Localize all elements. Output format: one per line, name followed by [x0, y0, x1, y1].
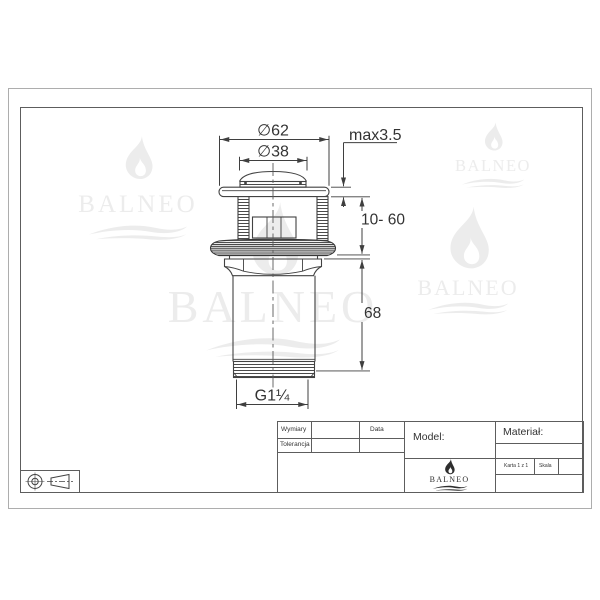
inner-frame	[20, 107, 583, 493]
drawing-sheet: BALNEO BALNEO BALNEO BALNEO	[0, 0, 600, 600]
